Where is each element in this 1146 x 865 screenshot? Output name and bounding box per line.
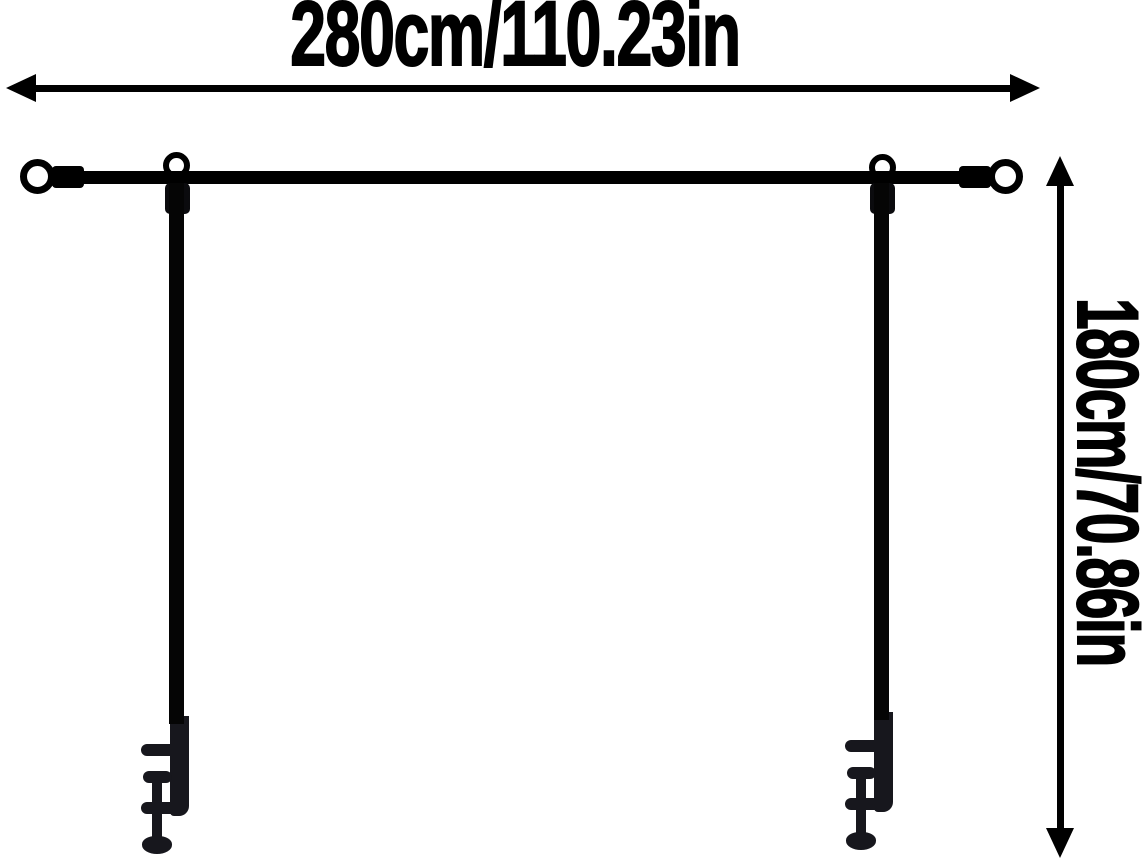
product-dimension-diagram: 280cm/110.23in 180cm/70.86in — [0, 0, 1146, 865]
width-dimension-label: 280cm/110.23in — [155, 0, 876, 82]
clamp-top-arm — [141, 744, 183, 756]
clamp-foot-knob — [142, 836, 172, 854]
crossbar-rod — [51, 171, 990, 184]
clamp-back — [170, 716, 189, 816]
height-arrow-down-head-icon — [1046, 828, 1074, 858]
height-dimension-label: 180cm/70.86in — [1064, 298, 1146, 666]
clamp-foot-knob — [846, 832, 876, 850]
clamp-top-arm — [845, 740, 887, 752]
table-clamp-left — [130, 716, 190, 861]
pole-left — [169, 183, 184, 724]
end-ring-left — [20, 159, 55, 194]
width-arrow-right-head-icon — [1010, 74, 1040, 102]
clamp-back — [874, 712, 893, 812]
rod-end-sleeve-right — [959, 166, 991, 188]
clamp-bottom-arm — [845, 798, 887, 810]
width-arrow-line — [24, 85, 1020, 92]
rod-end-sleeve-left — [52, 166, 84, 188]
end-ring-right — [988, 159, 1023, 194]
pole-right — [874, 183, 889, 720]
table-clamp-right — [834, 712, 894, 857]
clamp-bottom-arm — [141, 802, 183, 814]
